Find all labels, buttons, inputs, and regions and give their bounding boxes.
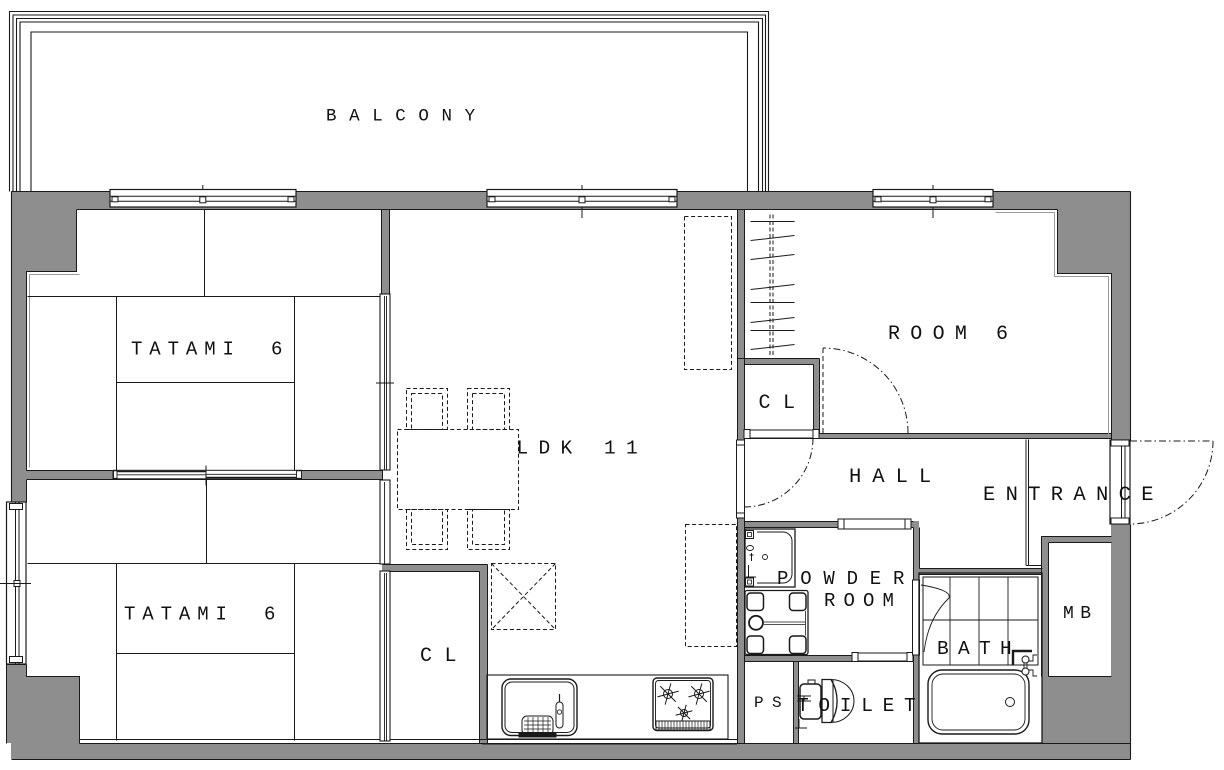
svg-text:HALL: HALL bbox=[849, 466, 942, 489]
svg-text:CL: CL bbox=[420, 645, 469, 668]
svg-text:6: 6 bbox=[271, 339, 282, 361]
svg-text:ROOM: ROOM bbox=[824, 590, 902, 612]
svg-text:CL: CL bbox=[759, 392, 808, 415]
svg-text:PS: PS bbox=[754, 694, 790, 712]
svg-text:BATH: BATH bbox=[937, 638, 1021, 660]
svg-text:TOILET: TOILET bbox=[797, 695, 925, 717]
svg-text:TATAMI: TATAMI bbox=[124, 604, 234, 626]
svg-text:ENTRANCE: ENTRANCE bbox=[983, 484, 1164, 507]
svg-text:6: 6 bbox=[996, 323, 1008, 346]
svg-text:TATAMI: TATAMI bbox=[131, 339, 241, 361]
svg-text:BALCONY: BALCONY bbox=[326, 107, 488, 127]
svg-text:LDK: LDK bbox=[517, 438, 583, 460]
svg-text:11: 11 bbox=[604, 438, 648, 460]
svg-text:6: 6 bbox=[264, 604, 275, 626]
svg-text:MB: MB bbox=[1063, 604, 1098, 624]
svg-text:POWDER: POWDER bbox=[777, 568, 916, 590]
svg-text:ROOM: ROOM bbox=[888, 323, 977, 346]
